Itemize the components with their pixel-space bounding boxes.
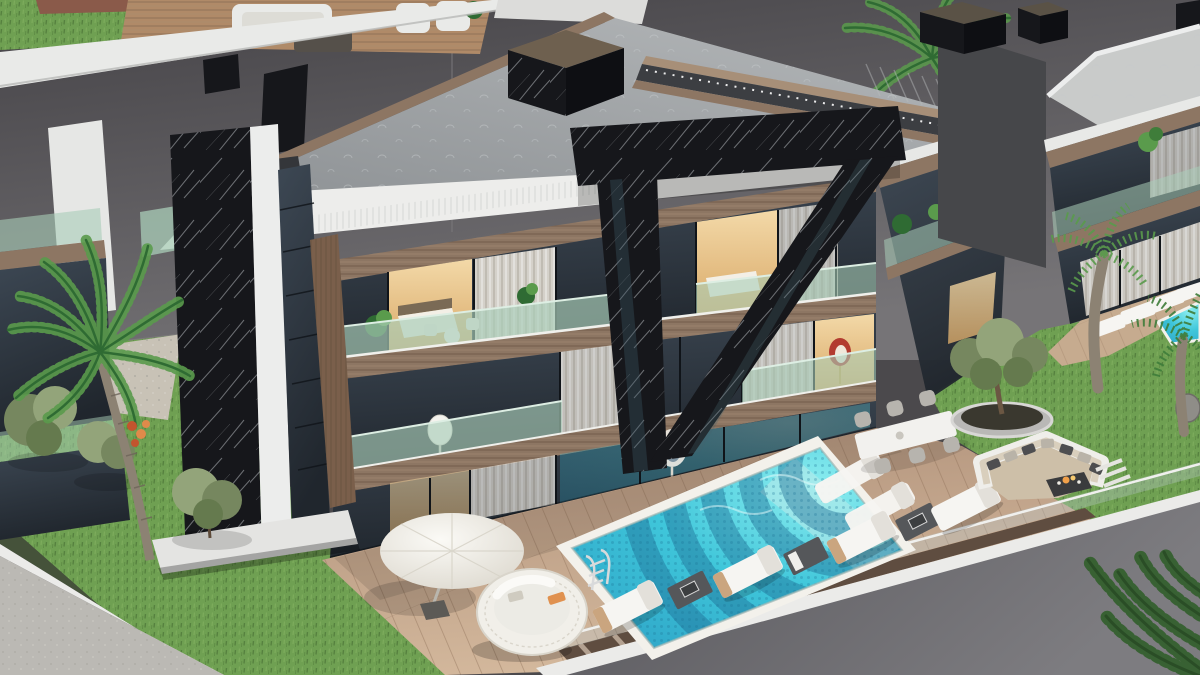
villa-render [0, 0, 1200, 675]
neighbor-side-wall [938, 28, 1046, 268]
marble-post [203, 54, 240, 94]
bottle-palm-trunk [1180, 340, 1184, 432]
render-canvas [0, 0, 1200, 675]
balcony-plant [892, 214, 912, 234]
